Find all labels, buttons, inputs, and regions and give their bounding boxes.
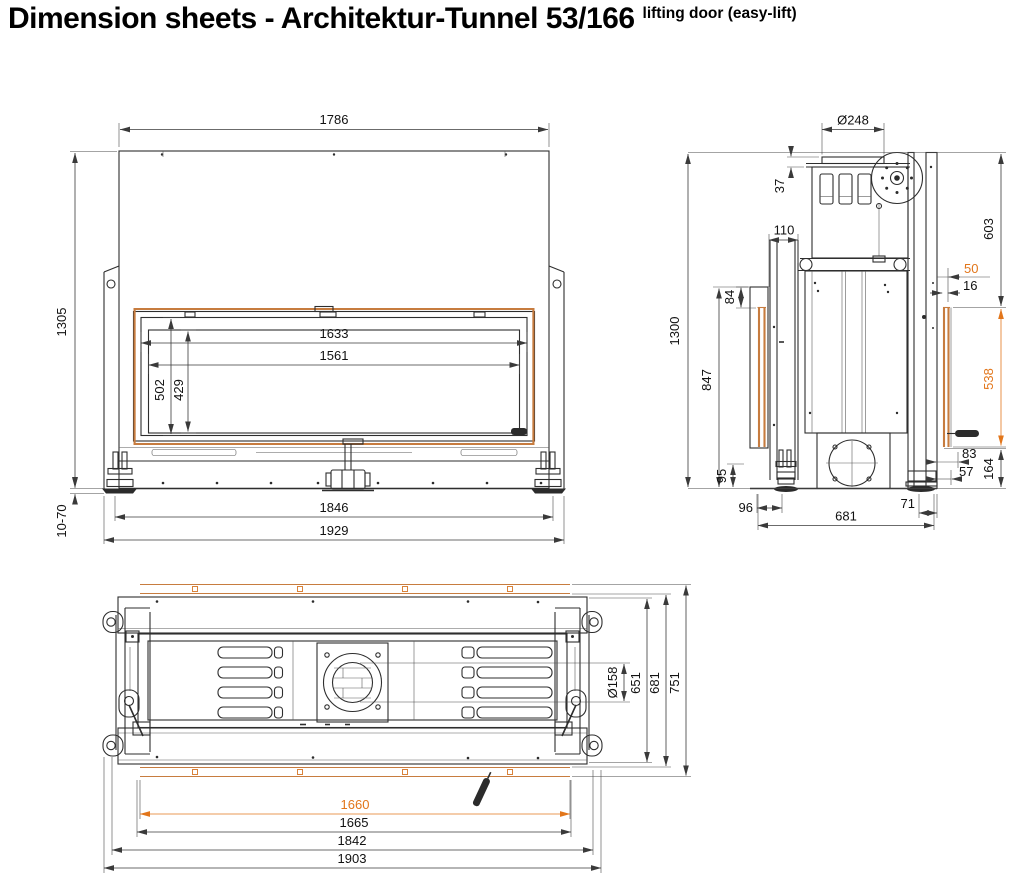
left-end-cap (103, 608, 150, 756)
dim-side-57: 57 (959, 464, 973, 479)
dim-top-1665: 1665 (340, 815, 369, 830)
dim-side-164: 164 (981, 458, 996, 480)
top-view-dimensions: 651 681 751 Ø158 1660 1665 1842 1903 (104, 585, 691, 874)
side-view: Ø248 37 110 84 1300 847 95 96 71 (667, 113, 1006, 531)
dim-top-751: 751 (667, 672, 682, 694)
vent-slots-left (218, 647, 283, 718)
front-view-geometry (102, 151, 566, 494)
dim-side-95: 95 (714, 469, 729, 483)
dim-side-1300: 1300 (667, 317, 682, 346)
dim-front-1305: 1305 (54, 308, 69, 337)
duct-flange (317, 643, 388, 722)
dim-side-603: 603 (981, 218, 996, 240)
door-glass (149, 330, 520, 433)
easy-lift-pulley (872, 153, 923, 204)
side-view-dimensions: Ø248 37 110 84 1300 847 95 96 71 (667, 113, 1006, 531)
top-view-geometry (103, 585, 602, 808)
dim-top-duct: Ø158 (605, 667, 620, 699)
door-handle-icon (511, 428, 527, 435)
dim-side-71: 71 (901, 496, 915, 511)
side-front-foot (774, 450, 798, 492)
dim-side-50: 50 (964, 261, 978, 276)
front-view: 1786 1305 1633 1561 502 429 10-70 1846 (54, 112, 566, 544)
dim-top-681: 681 (647, 672, 662, 694)
dim-side-110: 110 (774, 223, 795, 238)
dim-top-1660: 1660 (341, 797, 370, 812)
dim-top-1842: 1842 (338, 833, 367, 848)
dim-front-429: 429 (171, 379, 186, 401)
dim-side-37: 37 (772, 179, 787, 193)
dim-side-847: 847 (699, 369, 714, 391)
dim-front-1561: 1561 (320, 348, 349, 363)
dim-front-1633: 1633 (320, 326, 349, 341)
top-view: 651 681 751 Ø158 1660 1665 1842 1903 (103, 585, 691, 874)
lift-cable (873, 203, 885, 262)
dim-top-651: 651 (628, 672, 643, 694)
dim-side-681: 681 (835, 509, 857, 524)
flue-collar (822, 157, 884, 164)
dim-front-1846: 1846 (320, 500, 349, 515)
dim-front-1929: 1929 (320, 523, 349, 538)
dim-side-96: 96 (739, 500, 753, 515)
dim-front-1786: 1786 (320, 112, 349, 127)
dim-side-538: 538 (981, 368, 996, 390)
side-handle-icon (955, 430, 979, 437)
dim-side-16: 16 (963, 278, 977, 293)
side-view-geometry (750, 153, 979, 493)
dim-front-502: 502 (152, 379, 167, 401)
vent-slots-right (462, 647, 552, 718)
dim-front-foot-range: 10-70 (54, 504, 69, 537)
lift-mechanism (322, 444, 374, 491)
dim-top-1903: 1903 (338, 851, 367, 866)
right-end-cap (555, 608, 602, 756)
dim-side-84: 84 (722, 290, 737, 304)
dimension-drawing: 1786 1305 1633 1561 502 429 10-70 1846 (0, 0, 1021, 889)
dim-side-flue: Ø248 (837, 113, 869, 128)
